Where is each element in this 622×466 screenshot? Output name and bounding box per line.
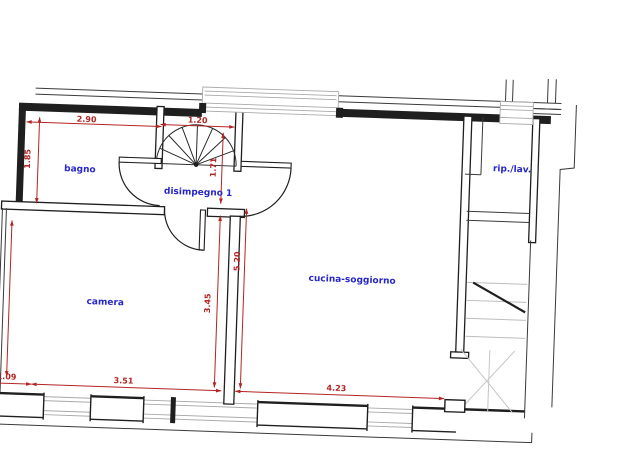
dim-bottom-offset: 1.09	[0, 372, 17, 382]
dim-camera-width: 3.51	[113, 376, 133, 386]
room-label-camera: camera	[86, 297, 124, 308]
dim-cucina-height: 5.20	[232, 251, 242, 271]
dim-disimpegno-height: 1.71	[209, 157, 219, 177]
window-bottom-3	[367, 403, 413, 434]
window-bottom-2	[143, 395, 258, 428]
window-bottom-1	[43, 392, 91, 423]
dim-camera-height: 3.45	[203, 293, 213, 313]
floor-plan-drawing: 2.90 1.20 1.85 1.71 3.45 5.20 3.45 1.09 …	[0, 0, 622, 466]
dim-bagno-width: 2.90	[77, 115, 97, 125]
room-label-bagno: bagno	[64, 164, 96, 175]
dim-spiral-width: 1.20	[188, 115, 208, 125]
dim-cucina-width: 4.23	[326, 383, 346, 393]
window-riplav	[500, 101, 534, 124]
room-label-riplav: rip./lav.	[493, 164, 532, 175]
dim-bagno-height: 1.85	[23, 148, 33, 168]
stair-entry-step	[445, 400, 465, 413]
floor-plan-canvas: 2.90 1.20 1.85 1.71 3.45 5.20 3.45 1.09 …	[0, 0, 622, 466]
